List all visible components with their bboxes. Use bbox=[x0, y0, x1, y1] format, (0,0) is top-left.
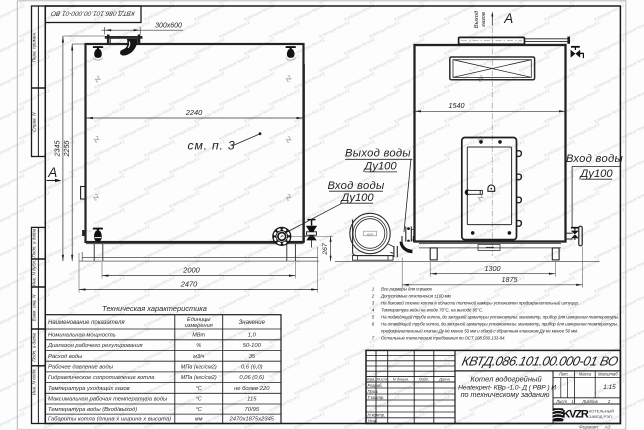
svg-text:Перв. примен.: Перв. примен. bbox=[31, 32, 36, 63]
svg-text:kotelnaya-Nov.KZ: kotelnaya-Nov.KZ bbox=[0, 19, 1, 38]
svg-text:kotelnaya-Nov.KZ: kotelnaya-Nov.KZ bbox=[0, 257, 1, 276]
svg-text:kotelnaya-Nov.KZ: kotelnaya-Nov.KZ bbox=[0, 121, 1, 140]
svg-text:1: 1 bbox=[571, 399, 573, 404]
svg-text:35: 35 bbox=[249, 354, 256, 360]
svg-text:kotelnaya-Nov.KZ: kotelnaya-Nov.KZ bbox=[618, 19, 644, 38]
svg-text:Вход воды: Вход воды bbox=[327, 180, 384, 192]
svg-text:kotelnaya-Nov.KZ: kotelnaya-Nov.KZ bbox=[0, 342, 26, 361]
svg-text:А: А bbox=[47, 165, 57, 180]
svg-text:Гидравлическое сопротивление к: Гидравлическое сопротивление котла bbox=[48, 375, 155, 381]
svg-text:см. п. 3: см. п. 3 bbox=[188, 139, 236, 153]
svg-text:Температура воды (Вход/выход): Температура воды (Вход/выход) bbox=[48, 407, 137, 413]
svg-text:1540: 1540 bbox=[449, 101, 465, 110]
svg-text:kotelnaya-Nov.KZ: kotelnaya-Nov.KZ bbox=[618, 87, 644, 106]
svg-text:°С: °С bbox=[196, 386, 202, 392]
svg-text:2345: 2345 bbox=[52, 140, 61, 158]
svg-text:kotelnaya-Nov.KZ: kotelnaya-Nov.KZ bbox=[0, 325, 1, 344]
svg-text:Масштаб: Масштаб bbox=[598, 372, 618, 377]
svg-text:Максимальная рабочая температу: Максимальная рабочая температура воды bbox=[48, 397, 168, 403]
svg-text:kotelnaya-Nov.KZ: kotelnaya-Nov.KZ bbox=[0, 53, 1, 72]
svg-text:2: 2 bbox=[607, 399, 611, 404]
svg-text:А3: А3 bbox=[604, 424, 611, 430]
svg-text:Лит.: Лит. bbox=[558, 372, 569, 377]
svg-text:Справ. N: Справ. N bbox=[31, 112, 36, 132]
svg-text:kotelnaya-Nov.KZ: kotelnaya-Nov.KZ bbox=[0, 359, 1, 378]
svg-text:kotelnaya-Nov.KZ: kotelnaya-Nov.KZ bbox=[0, 240, 26, 259]
svg-text:kotelnaya-Nov.KZ: kotelnaya-Nov.KZ bbox=[0, 70, 26, 89]
svg-text:kotelnaya-Nov.KZ: kotelnaya-Nov.KZ bbox=[0, 274, 26, 293]
svg-text:Рабочее давление воды: Рабочее давление воды bbox=[48, 364, 114, 370]
svg-text:1:15: 1:15 bbox=[603, 384, 616, 391]
svg-text:0,06 (0,6): 0,06 (0,6) bbox=[239, 375, 264, 381]
svg-text:Ду100: Ду100 bbox=[339, 192, 374, 204]
svg-text:А: А bbox=[503, 11, 513, 26]
svg-text:Все размеры для справок: Все размеры для справок bbox=[381, 287, 433, 292]
svg-text:Н.контр.: Н.контр. bbox=[368, 412, 386, 417]
svg-text:kotelnaya-Nov.KZ: kotelnaya-Nov.KZ bbox=[618, 53, 644, 72]
svg-text:Инв. N подл.: Инв. N подл. bbox=[31, 368, 36, 395]
svg-text:Подп.: Подп. bbox=[419, 377, 430, 382]
svg-text:Лист: Лист bbox=[555, 399, 567, 404]
svg-text:Изм.: Изм. bbox=[367, 377, 376, 382]
svg-text:Единицы: Единицы bbox=[187, 317, 210, 323]
svg-text:Номинальная мощность: Номинальная мощность bbox=[48, 332, 116, 338]
svg-text:Взам. инв. N: Взам. инв. N bbox=[31, 294, 36, 321]
svg-text:Остальные технические требован: Остальные технические требования по ОСТ … bbox=[381, 336, 505, 341]
svg-text:Диапазон рабочего регулировани: Диапазон рабочего регулирования bbox=[47, 343, 143, 349]
svg-text:2255: 2255 bbox=[62, 140, 71, 158]
svg-text:6: 6 bbox=[372, 322, 375, 327]
svg-text:Подп. и дата: Подп. и дата bbox=[31, 333, 36, 362]
svg-text:Подп. и дата: Подп. и дата bbox=[31, 228, 36, 257]
svg-text:kotelnaya-Nov.KZ: kotelnaya-Nov.KZ bbox=[618, 257, 644, 276]
svg-text:Пров.: Пров. bbox=[368, 389, 379, 394]
svg-text:°С: °С bbox=[196, 407, 202, 413]
svg-text:2240: 2240 bbox=[185, 108, 203, 117]
svg-text:Значение: Значение bbox=[239, 320, 266, 326]
svg-text:1: 1 bbox=[372, 287, 375, 292]
svg-text:газов: газов bbox=[481, 12, 487, 27]
svg-text:Т.контр.: Т.контр. bbox=[368, 395, 385, 400]
svg-text:КВЗР: КВЗР bbox=[367, 232, 374, 236]
svg-text:Техническая характеристика: Техническая характеристика bbox=[102, 304, 207, 313]
svg-text:300х600: 300х600 bbox=[155, 22, 182, 29]
svg-text:°С: °С bbox=[196, 397, 202, 403]
svg-text:2: 2 bbox=[371, 294, 375, 299]
svg-text:KVZR: KVZR bbox=[562, 408, 588, 420]
svg-text:115: 115 bbox=[247, 397, 257, 403]
svg-text:kotelnaya-Nov.KZ: kotelnaya-Nov.KZ bbox=[0, 393, 1, 412]
svg-text:Выход: Выход bbox=[474, 10, 480, 28]
svg-text:Котел водогрейный: Котел водогрейный bbox=[470, 374, 542, 383]
svg-text:предохранительный клапан Ду не: предохранительный клапан Ду не менее 50 … bbox=[381, 328, 578, 334]
svg-text:kotelnaya-Nov.KZ: kotelnaya-Nov.KZ bbox=[618, 189, 644, 208]
svg-text:kotelnaya-Nov.KZ: kotelnaya-Nov.KZ bbox=[618, 121, 644, 140]
svg-text:2000: 2000 bbox=[182, 266, 200, 275]
svg-text:kotelnaya-Nov.KZ: kotelnaya-Nov.KZ bbox=[618, 359, 644, 378]
svg-text:МВт: МВт bbox=[192, 332, 205, 338]
svg-text:Дата: Дата bbox=[438, 377, 450, 382]
svg-text:%: % bbox=[196, 343, 201, 349]
svg-text:Лист: Лист bbox=[376, 377, 388, 382]
svg-text:kotelnaya-Nov.KZ: kotelnaya-Nov.KZ bbox=[0, 104, 26, 123]
svg-text:Наименование показателя: Наименование показателя bbox=[48, 320, 125, 326]
svg-text:0,6 (6,0): 0,6 (6,0) bbox=[241, 364, 263, 370]
svg-text:Расход воды: Расход воды bbox=[48, 354, 83, 360]
svg-text:50-100: 50-100 bbox=[243, 343, 262, 349]
svg-text:Выход воды: Выход воды bbox=[345, 148, 411, 160]
svg-text:1300: 1300 bbox=[485, 264, 501, 273]
svg-text:Температура уходящих газов: Температура уходящих газов bbox=[48, 386, 130, 392]
svg-text:1,0: 1,0 bbox=[248, 332, 257, 338]
svg-text:kotelnaya-Nov.KZ: kotelnaya-Nov.KZ bbox=[618, 223, 644, 242]
svg-text:kotelnaya-Nov.KZ: kotelnaya-Nov.KZ bbox=[0, 172, 26, 191]
svg-text:м3/ч: м3/ч bbox=[193, 354, 204, 360]
svg-text:Листов: Листов bbox=[581, 399, 598, 404]
svg-text:КВТД.086.101.00.000-01 ВО: КВТД.086.101.00.000-01 ВО bbox=[461, 354, 620, 369]
svg-text:kotelnaya-Nov.KZ: kotelnaya-Nov.KZ bbox=[0, 87, 1, 106]
svg-text:Ду100: Ду100 bbox=[578, 168, 613, 180]
svg-text:по техническому заданию: по техническому заданию bbox=[461, 390, 550, 399]
svg-text:На отводящей трубе котла, до з: На отводящей трубе котла, до запорной ар… bbox=[381, 321, 618, 327]
svg-text:kotelnaya-Nov.KZ: kotelnaya-Nov.KZ bbox=[0, 189, 1, 208]
svg-text:Габариты котла (длина х ширина: Габариты котла (длина х ширина х высота) bbox=[48, 417, 171, 423]
svg-text:Ду100: Ду100 bbox=[362, 160, 397, 172]
svg-text:kotelnaya-Nov.KZ: kotelnaya-Nov.KZ bbox=[0, 0, 1, 5]
svg-text:kotelnaya-Nov.KZ: kotelnaya-Nov.KZ bbox=[618, 325, 644, 344]
svg-text:Инв. N дубл.: Инв. N дубл. bbox=[31, 260, 36, 287]
svg-text:Разраб.: Разраб. bbox=[368, 383, 383, 388]
svg-text:kotelnaya-Nov.KZ: kotelnaya-Nov.KZ bbox=[0, 2, 26, 21]
svg-text:kotelnaya-Nov.KZ: kotelnaya-Nov.KZ bbox=[0, 155, 1, 174]
svg-text:1875: 1875 bbox=[502, 275, 519, 284]
svg-text:МПа (кгс/см2): МПа (кгс/см2) bbox=[181, 375, 217, 381]
svg-text:не более 220: не более 220 bbox=[234, 386, 270, 392]
svg-text:измерения: измерения bbox=[185, 323, 213, 329]
svg-text:Утв.: Утв. bbox=[368, 418, 378, 423]
svg-text:Допустимые отклонения ±100 мм: Допустимые отклонения ±100 мм. bbox=[380, 294, 452, 299]
svg-text:мм: мм bbox=[195, 417, 203, 423]
svg-text:Температура воды на входе 70°: Температура воды на входе 70°С, на выход… bbox=[381, 308, 483, 313]
svg-text:kotelnaya-Nov.KZ: kotelnaya-Nov.KZ bbox=[0, 223, 1, 242]
svg-text:kotelnaya-Nov.KZ: kotelnaya-Nov.KZ bbox=[0, 36, 26, 55]
svg-text:2470х1875х2345: 2470х1875х2345 bbox=[229, 417, 275, 423]
svg-text:267: 267 bbox=[322, 243, 329, 256]
svg-text:kotelnaya-Nov.KZ: kotelnaya-Nov.KZ bbox=[0, 308, 26, 327]
svg-text:Масса: Масса bbox=[579, 372, 592, 377]
svg-text:МПа (кгс/см2): МПа (кгс/см2) bbox=[181, 364, 217, 370]
svg-text:Вход воды: Вход воды bbox=[566, 153, 623, 165]
svg-text:ЗАВОД РЭП: ЗАВОД РЭП bbox=[589, 414, 612, 419]
svg-text:kotelnaya-Nov.KZ: kotelnaya-Nov.KZ bbox=[0, 138, 26, 157]
svg-text:kotelnaya-Nov.KZ: kotelnaya-Nov.KZ bbox=[0, 206, 26, 225]
svg-text:2470: 2470 bbox=[180, 280, 198, 289]
svg-text:70/95: 70/95 bbox=[245, 407, 260, 413]
svg-text:На подводящей трубе котла, до: На подводящей трубе котла, до запорной а… bbox=[381, 314, 619, 320]
svg-text:kotelnaya-Nov.KZ: kotelnaya-Nov.KZ bbox=[618, 291, 644, 310]
svg-text:На боковой стенке котла в обла: На боковой стенке котла в области топочн… bbox=[381, 300, 579, 306]
svg-text:Формат: Формат bbox=[579, 424, 598, 430]
svg-text:kotelnaya-Nov.KZ: kotelnaya-Nov.KZ bbox=[0, 376, 26, 395]
svg-text:N докум.: N докум. bbox=[393, 377, 409, 382]
svg-text:kotelnaya-Nov.KZ: kotelnaya-Nov.KZ bbox=[0, 291, 1, 310]
svg-text:kotelnaya-Nov.KZ: kotelnaya-Nov.KZ bbox=[0, 410, 26, 429]
svg-text:5: 5 bbox=[372, 315, 375, 320]
svg-text:kotelnaya-Nov.KZ: kotelnaya-Nov.KZ bbox=[618, 393, 644, 412]
svg-text:КВТД.086.101.00.000-01 ВО: КВТД.086.101.00.000-01 ВО bbox=[51, 10, 136, 17]
